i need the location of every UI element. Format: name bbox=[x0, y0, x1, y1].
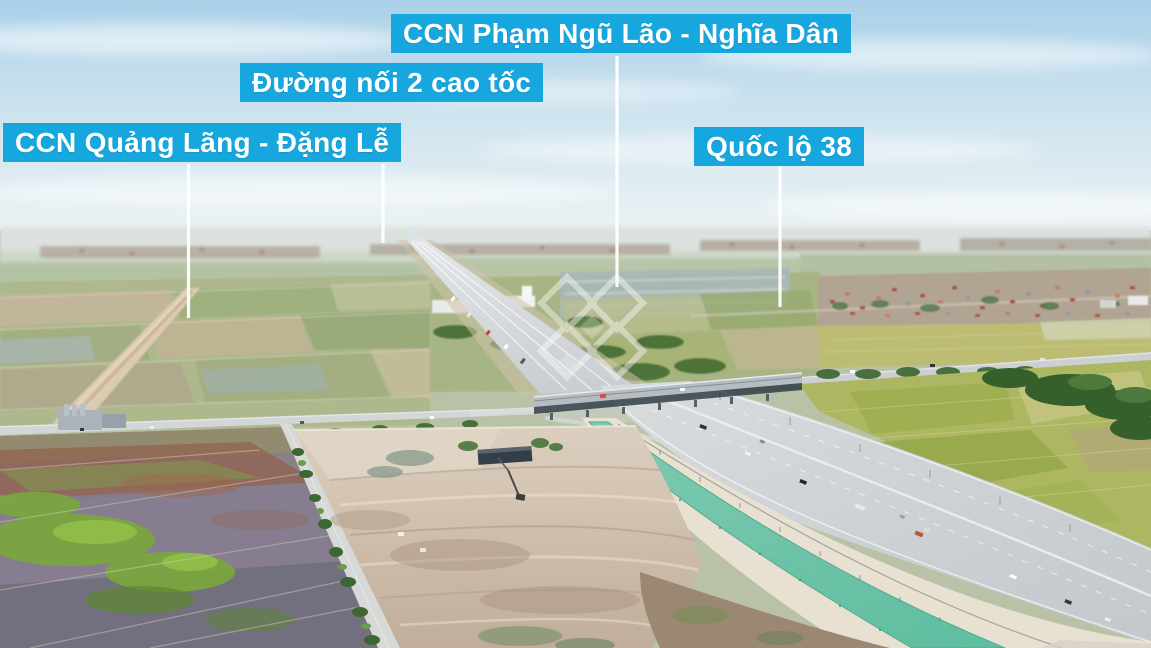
label-quoc-lo-38: Quốc lộ 38 bbox=[694, 127, 864, 166]
annotated-aerial-photo: CCN Phạm Ngũ Lão - Nghĩa Dân Đường nối 2… bbox=[0, 0, 1151, 648]
label-ccn-pham-ngu-lao-nghia-dan: CCN Phạm Ngũ Lão - Nghĩa Dân bbox=[391, 14, 851, 53]
aerial-photo-canvas bbox=[0, 0, 1151, 648]
label-duong-noi-2-cao-toc: Đường nối 2 cao tốc bbox=[240, 63, 543, 102]
label-ccn-quang-lang-dang-le: CCN Quảng Lãng - Đặng Lễ bbox=[3, 123, 401, 162]
